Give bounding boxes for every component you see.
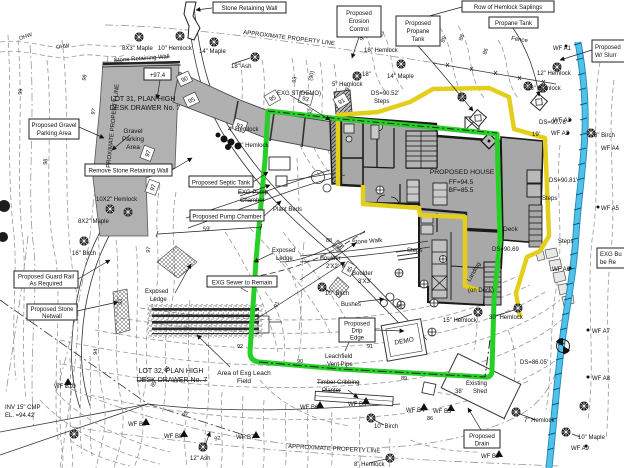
svg-text:Drip: Drip	[351, 329, 363, 335]
svg-text:Row of Hemlock Saplings: Row of Hemlock Saplings	[474, 5, 542, 11]
svg-text:WF B9: WF B9	[128, 422, 147, 428]
svg-text:Proposed Septic Tank: Proposed Septic Tank	[192, 181, 251, 187]
svg-text:WF B4: WF B4	[406, 408, 425, 414]
svg-text:98: 98	[43, 158, 50, 165]
svg-text:Propane: Propane	[407, 29, 430, 35]
svg-text:DESK DRAWER No. 7: DESK DRAWER No. 7	[110, 105, 181, 112]
svg-text:88: 88	[326, 238, 332, 244]
svg-text:Stone Retaining Wall: Stone Retaining Wall	[222, 6, 278, 12]
svg-text:DS=90.52': DS=90.52'	[371, 91, 399, 97]
svg-text:WF A2: WF A2	[551, 131, 570, 137]
svg-text:DS=90.69: DS=90.69	[492, 247, 520, 253]
svg-text:59': 59'	[203, 226, 211, 233]
svg-text:DS=90.81': DS=90.81'	[549, 178, 577, 184]
svg-text:EXG Pump: EXG Pump	[238, 190, 269, 196]
svg-text:EL. =94.42': EL. =94.42'	[5, 413, 35, 419]
svg-text:Parking: Parking	[122, 136, 144, 143]
svg-text:Erosion: Erosion	[349, 19, 369, 25]
svg-text:Ledge: Ledge	[150, 297, 167, 303]
svg-text:(on Deck): (on Deck)	[468, 288, 494, 294]
svg-text:97: 97	[146, 246, 153, 253]
svg-text:15" Hemlock: 15" Hemlock	[443, 318, 478, 324]
svg-text:Proposed: Proposed	[595, 45, 621, 51]
svg-text:Edge: Edge	[350, 336, 365, 342]
svg-text:Timber Cribbing: Timber Cribbing	[317, 380, 359, 386]
svg-text:WF B2: WF B2	[481, 454, 500, 460]
svg-text:8X3" Maple: 8X3" Maple	[122, 46, 153, 52]
svg-text:WF B8: WF B8	[164, 434, 183, 440]
svg-text:4" Hemlock: 4" Hemlock	[228, 127, 259, 133]
svg-text:10" Birch: 10" Birch	[325, 291, 349, 297]
svg-text:18" Ash: 18" Ash	[231, 64, 251, 70]
svg-text:8" Hemlock: 8" Hemlock	[238, 143, 269, 149]
svg-text:Vent Pipe: Vent Pipe	[327, 362, 353, 368]
svg-text:EXG ST(DEMO): EXG ST(DEMO)	[277, 91, 321, 97]
svg-text:Steps: Steps	[558, 239, 573, 245]
svg-text:10" Birch: 10" Birch	[374, 424, 398, 430]
svg-text:8X2" Maple: 8X2" Maple	[78, 219, 109, 225]
svg-text:38': 38'	[455, 389, 463, 395]
svg-text:7" Hemlock: 7" Hemlock	[524, 418, 555, 424]
svg-text:LOT 31, PLAN HIGH: LOT 31, PLAN HIGH	[111, 96, 176, 103]
svg-text:18" Hemlock: 18" Hemlock	[364, 48, 399, 54]
svg-text:Area: Area	[126, 144, 140, 151]
svg-text:91: 91	[367, 344, 373, 350]
svg-text:WF A9: WF A9	[571, 446, 590, 452]
svg-text:Area of Exg Leach: Area of Exg Leach	[217, 370, 271, 377]
svg-text:Deck: Deck	[503, 226, 519, 233]
svg-text:99: 99	[18, 88, 25, 95]
svg-text:2'X2': 2'X2'	[326, 264, 339, 270]
svg-text:be Re: be Re	[600, 260, 617, 266]
svg-text:WF B7: WF B7	[236, 435, 255, 441]
svg-text:As Required: As Required	[29, 282, 62, 288]
svg-text:14" Maple: 14" Maple	[199, 49, 226, 55]
svg-text:BF=85.5: BF=85.5	[449, 187, 474, 194]
svg-text:Control: Control	[349, 27, 368, 33]
svg-text:Proposed Pump Chamber: Proposed Pump Chamber	[192, 215, 261, 221]
svg-text:Drain: Drain	[475, 442, 489, 448]
svg-text:Proposed Guard Rail: Proposed Guard Rail	[18, 275, 74, 281]
svg-text:92: 92	[237, 344, 243, 350]
svg-text:Bushes: Bushes	[341, 302, 361, 308]
svg-text:Chamber: Chamber	[240, 198, 265, 204]
svg-text:Remove Stone Retaining Wall: Remove Stone Retaining Wall	[89, 169, 169, 175]
svg-text:Propane Tank: Propane Tank	[495, 21, 533, 27]
svg-text:WF B10: WF B10	[54, 384, 76, 390]
svg-text:89: 89	[401, 376, 407, 382]
svg-text:Planter: Planter	[322, 388, 341, 394]
svg-text:W/ Slurr: W/ Slurr	[595, 53, 617, 59]
svg-text:WF A3: WF A3	[553, 118, 572, 124]
svg-text:WF A5: WF A5	[601, 206, 620, 212]
svg-text:Steps: Steps	[542, 196, 557, 202]
svg-text:WF A8: WF A8	[592, 376, 611, 382]
svg-text:Steps: Steps	[407, 248, 422, 254]
svg-text:Field: Field	[237, 378, 251, 385]
svg-text:8" Birch: 8" Birch	[594, 133, 615, 139]
svg-text:Leachfield: Leachfield	[325, 354, 352, 360]
svg-text:FF=94.5: FF=94.5	[449, 179, 474, 186]
svg-text:EXG Bu: EXG Bu	[600, 252, 622, 258]
svg-text:10" Hemlock: 10" Hemlock	[158, 46, 193, 52]
svg-text:Boulder: Boulder	[352, 271, 373, 277]
svg-text:WF B3: WF B3	[433, 409, 452, 415]
svg-text:86: 86	[427, 416, 433, 422]
svg-text:5" Hemlock: 5" Hemlock	[332, 82, 363, 88]
svg-text:3'X3': 3'X3'	[358, 279, 371, 285]
svg-text:14" Maple: 14" Maple	[387, 74, 414, 80]
svg-text:LOT 32, PLAN HIGH: LOT 32, PLAN HIGH	[139, 368, 204, 375]
svg-text:WF B6: WF B6	[300, 405, 319, 411]
svg-text:Tank: Tank	[412, 37, 426, 43]
svg-text:Parking Area: Parking Area	[37, 131, 72, 137]
svg-text:DESK DRAWER No. 7: DESK DRAWER No. 7	[137, 377, 208, 384]
svg-text:DS=86.05': DS=86.05'	[520, 360, 548, 366]
svg-text:10" Maple: 10" Maple	[578, 435, 605, 441]
svg-text:Netwall: Netwall	[42, 314, 62, 320]
svg-text:Gravel: Gravel	[123, 128, 143, 135]
svg-text:Steps: Steps	[374, 99, 389, 105]
svg-text:WF A1: WF A1	[553, 46, 572, 52]
svg-text:Boulder: Boulder	[320, 256, 341, 262]
svg-text:18": 18"	[362, 72, 371, 78]
svg-text:WF B5: WF B5	[348, 402, 367, 408]
svg-text:PROPOSED HOUSE: PROPOSED HOUSE	[430, 169, 495, 176]
svg-text:EXG Sewer to Remain: EXG Sewer to Remain	[212, 281, 272, 287]
svg-text:WF A7: WF A7	[592, 329, 611, 335]
svg-text:Proposed: Proposed	[344, 322, 370, 328]
svg-text:12" Ash: 12" Ash	[190, 456, 210, 462]
svg-text:93: 93	[292, 76, 299, 83]
svg-text:+97.4: +97.4	[150, 73, 166, 79]
svg-text:WF A6: WF A6	[552, 267, 571, 273]
svg-text:16" Hemlock: 16" Hemlock	[527, 86, 562, 92]
svg-text:Plant Beds: Plant Beds	[273, 207, 302, 213]
svg-text:Proposed Stone: Proposed Stone	[30, 307, 74, 313]
svg-text:Ledge: Ledge	[276, 256, 293, 262]
svg-text:10X2" Hemlock: 10X2" Hemlock	[96, 197, 138, 203]
svg-text:Proposed: Proposed	[469, 434, 495, 440]
svg-text:19': 19'	[532, 132, 540, 138]
svg-text:8" Hemlock: 8" Hemlock	[354, 462, 385, 468]
svg-text:12" Hemlock: 12" Hemlock	[537, 71, 572, 77]
svg-text:30" Hemlock: 30" Hemlock	[489, 315, 524, 321]
svg-text:16" Birch: 16" Birch	[72, 251, 96, 257]
svg-text:Proposed: Proposed	[346, 11, 372, 17]
svg-text:WF A4: WF A4	[601, 146, 620, 152]
svg-text:Proposed Gravel: Proposed Gravel	[31, 123, 76, 129]
svg-text:Exposed: Exposed	[145, 289, 168, 295]
svg-text:INV 15" CMP: INV 15" CMP	[5, 405, 40, 411]
svg-text:Exposed: Exposed	[272, 248, 295, 254]
svg-text:Proposed: Proposed	[405, 21, 431, 27]
svg-text:Shed: Shed	[473, 389, 487, 395]
svg-text:Existing: Existing	[466, 381, 487, 387]
